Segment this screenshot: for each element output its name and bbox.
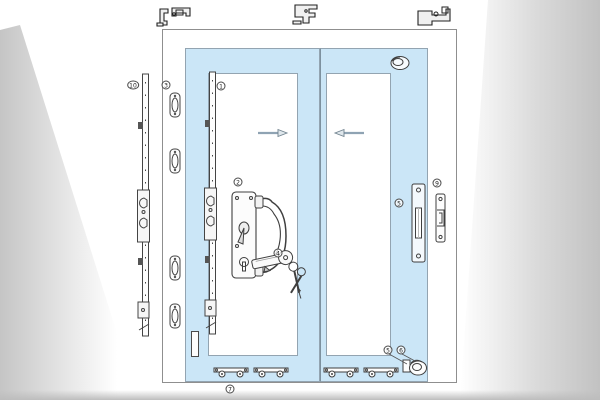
lock-bar-end-cap xyxy=(191,331,199,357)
callout-3: 3 xyxy=(162,81,171,90)
callout-5-keep: 5 xyxy=(395,199,404,208)
extrusion-profile-icon xyxy=(291,3,323,25)
bottom-shading-gradient xyxy=(0,390,600,400)
mortise-keep-drawing xyxy=(410,182,427,264)
sash-lock-bar-drawing xyxy=(202,70,220,336)
callout-5-corner: 5 xyxy=(384,346,393,355)
roller-drawing xyxy=(253,366,289,378)
callout-6: 6 xyxy=(397,346,406,355)
callout-9: 9 xyxy=(433,179,442,188)
anti-lift-latch-drawing xyxy=(389,55,411,71)
arrow-right-icon xyxy=(257,128,288,138)
glass-pane-right xyxy=(326,73,391,356)
callout-7: 7 xyxy=(226,385,235,394)
callout-1: 1 xyxy=(217,82,226,91)
right-shading-gradient xyxy=(460,0,600,400)
keeper-plate-drawing xyxy=(168,255,182,281)
hook-keeper-drawing xyxy=(433,192,448,244)
callout-2: 2 xyxy=(234,178,243,187)
extrusion-profile-icon xyxy=(156,6,198,28)
keeper-plate-drawing xyxy=(168,303,182,329)
roller-drawing xyxy=(213,366,249,378)
arrow-left-icon xyxy=(334,128,365,138)
diagram-canvas: 1 2 3 4 5 5 6 7 9 10 xyxy=(0,0,600,400)
callout-4: 4 xyxy=(274,249,283,258)
multipoint-lock-bar-drawing xyxy=(135,72,153,338)
roller-drawing xyxy=(323,366,359,378)
callout-10: 10 xyxy=(127,81,139,90)
roller-drawing xyxy=(363,366,399,378)
extrusion-profile-icon xyxy=(416,5,452,27)
left-shading-gradient xyxy=(0,0,138,400)
keeper-plate-drawing xyxy=(168,92,182,118)
keeper-plate-drawing xyxy=(168,148,182,174)
